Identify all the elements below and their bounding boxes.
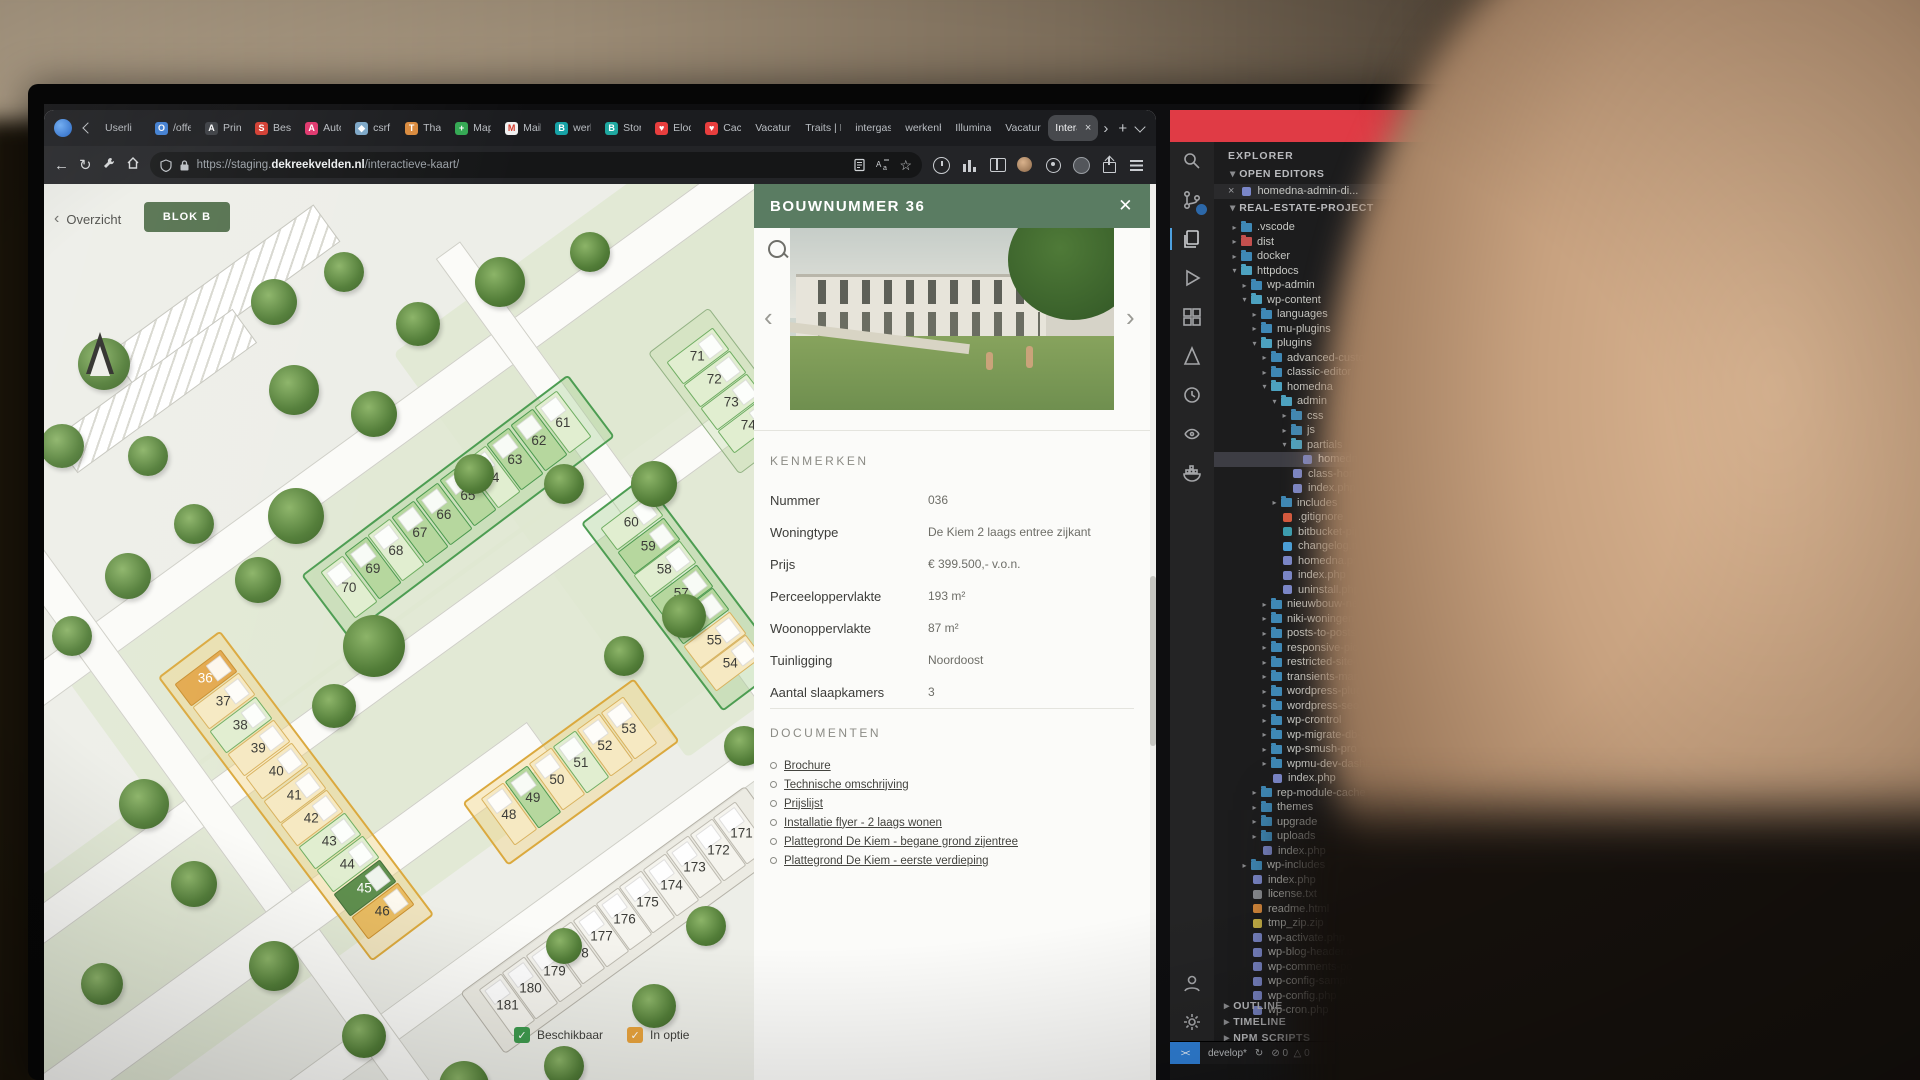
- chevron-right-icon: ▸: [1260, 716, 1269, 725]
- map-tree: [324, 252, 364, 292]
- plot-number: 52: [597, 737, 612, 752]
- tab-label: Userli: [105, 122, 132, 134]
- tree-item-label: languages: [1277, 308, 1328, 320]
- plot-number: 37: [216, 694, 231, 709]
- browser-tab[interactable]: Bwerke: [548, 115, 598, 141]
- plot-number: 44: [340, 857, 355, 872]
- plot-number: 68: [389, 543, 404, 558]
- photo-prev-icon[interactable]: ‹: [764, 302, 773, 333]
- plot-number: 36: [198, 671, 213, 686]
- plot-number: 176: [613, 912, 636, 927]
- browser-tab[interactable]: ♥Eloqu: [648, 115, 698, 141]
- chevron-down-icon: ▾: [1240, 295, 1249, 304]
- chevron-right-icon: ▸: [1260, 730, 1269, 739]
- accounts-icon[interactable]: [1181, 972, 1203, 994]
- chevron-right-icon: ▸: [1260, 745, 1269, 754]
- legend-checkbox: ✓: [627, 1027, 643, 1043]
- plot-number: 59: [641, 538, 656, 553]
- folder-icon: [1271, 730, 1282, 739]
- document-link[interactable]: Technische omschrijving: [784, 779, 909, 791]
- plot-number: 38: [234, 717, 249, 732]
- folder-icon: [1291, 426, 1302, 435]
- camera-extension-icon[interactable]: [1072, 156, 1090, 174]
- map-tree: [81, 963, 123, 1005]
- plot-number: 177: [589, 929, 612, 944]
- chevron-down-icon: ▾: [1280, 440, 1289, 449]
- chevron-right-icon: ▸: [1280, 411, 1289, 420]
- plot-number: 180: [519, 980, 542, 995]
- php-file-icon: [1283, 571, 1292, 580]
- plot-number: 39: [252, 740, 267, 755]
- map-tree: [546, 928, 582, 964]
- chevron-right-icon: ▸: [1260, 658, 1269, 667]
- folder-icon: [1251, 295, 1262, 304]
- search-icon[interactable]: [1181, 150, 1203, 172]
- document-link-row: Installatie flyer - 2 laags wonen: [770, 813, 1134, 832]
- kenmerk-label: Perceeloppervlakte: [770, 589, 928, 604]
- kenmerk-row: Nummer036: [770, 484, 1134, 516]
- folder-icon: [1271, 643, 1282, 652]
- browser-tab[interactable]: APrinci: [198, 115, 248, 141]
- map-tree: [269, 365, 319, 415]
- tab-favicon: +: [455, 122, 468, 135]
- document-link-row: Prijslijst: [770, 794, 1134, 813]
- sidebar-book-icon[interactable]: [988, 156, 1006, 174]
- tab-favicon: T: [405, 122, 418, 135]
- interactive-plot-map[interactable]: 7172737461626364656667686970545556575859…: [44, 184, 754, 1080]
- plot-number: 43: [322, 834, 337, 849]
- plot-number: 73: [724, 395, 739, 410]
- docker-icon[interactable]: [1181, 462, 1203, 484]
- panel-title: BOUWNUMMER 36: [770, 198, 925, 215]
- webpage-content: 7172737461626364656667686970545556575859…: [44, 184, 1156, 1080]
- map-tree: [105, 553, 151, 599]
- plot-number: 41: [287, 787, 302, 802]
- photo-windows-upper: [804, 280, 1040, 304]
- tab-label: Storyb: [623, 122, 641, 134]
- map-tree: [312, 684, 356, 728]
- bullet-icon: [770, 819, 777, 826]
- browser-tab[interactable]: intergas.n: [848, 115, 898, 141]
- url-bar[interactable]: https://staging.dekreekvelden.nl/interac…: [150, 152, 922, 178]
- legend-checkbox: ✓: [514, 1027, 530, 1043]
- folder-icon: [1271, 759, 1282, 768]
- remote-explorer-icon[interactable]: [1181, 423, 1203, 445]
- extensions-icon[interactable]: [1181, 306, 1203, 328]
- sidebar-section-timeline[interactable]: ▸ TIMELINE: [1224, 1016, 1286, 1028]
- bouwnummer-detail-panel: BOUWNUMMER 36 ✕: [754, 184, 1150, 1080]
- chevron-right-icon: ▸: [1230, 223, 1239, 232]
- home-icon[interactable]: [126, 156, 140, 174]
- chevron-right-icon: ▸: [1250, 324, 1259, 333]
- kenmerk-value: € 399.500,- v.o.n.: [928, 557, 1021, 571]
- bookmark-star-icon[interactable]: ☆: [899, 157, 912, 174]
- browser-tab[interactable]: Vacatures: [998, 115, 1048, 141]
- kenmerken-heading: KENMERKEN: [770, 454, 869, 468]
- browser-tab[interactable]: ◆csrf -: [348, 115, 398, 141]
- vscode-activity-bar: [1170, 142, 1214, 1047]
- browser-tab[interactable]: Userli: [98, 115, 148, 141]
- chevron-down-icon: ▾: [1230, 266, 1239, 275]
- php-file-icon: [1242, 187, 1251, 196]
- document-link-row: Brochure: [770, 756, 1134, 775]
- wrench-icon[interactable]: [102, 156, 116, 174]
- tab-favicon: B: [555, 122, 568, 135]
- tab-search-icon[interactable]: [1134, 121, 1145, 132]
- md-file-icon: [1283, 542, 1292, 551]
- folder-icon: [1271, 701, 1282, 710]
- plot-number: 46: [375, 904, 390, 919]
- browser-tab[interactable]: MMailtr: [498, 115, 548, 141]
- map-tree: [342, 1014, 386, 1058]
- browser-tab[interactable]: AAutom: [298, 115, 348, 141]
- folder-icon: [1251, 281, 1262, 290]
- svg-text:A: A: [876, 160, 882, 169]
- bullet-icon: [770, 857, 777, 864]
- kenmerk-value: Noordoost: [928, 653, 983, 667]
- map-tree: [544, 464, 584, 504]
- browser-tab[interactable]: +Mappi: [448, 115, 498, 141]
- tab-close-icon[interactable]: ×: [1085, 122, 1091, 134]
- plot-number: 40: [269, 764, 284, 779]
- tree-item-label: .vscode: [1257, 221, 1295, 233]
- tree-item-label: httpdocs: [1257, 265, 1299, 277]
- remote-indicator[interactable]: ><: [1170, 1042, 1200, 1064]
- map-tree: [128, 436, 168, 476]
- reader-mode-icon[interactable]: [853, 158, 866, 172]
- translate-icon[interactable]: Aa: [875, 158, 890, 172]
- chevron-right-icon: ▸: [1260, 353, 1269, 362]
- svg-text:a: a: [883, 165, 887, 172]
- yml-file-icon: [1283, 527, 1292, 536]
- azure-icon[interactable]: [1181, 345, 1203, 367]
- folder-icon: [1271, 353, 1282, 362]
- zoom-photo-icon[interactable]: [768, 240, 786, 258]
- plot-number: 179: [543, 963, 566, 978]
- bullet-icon: [770, 762, 777, 769]
- project-root-section[interactable]: ▾ REAL-ESTATE-PROJECT: [1230, 202, 1374, 214]
- chevron-right-icon: ▸: [1260, 629, 1269, 638]
- document-link[interactable]: Installatie flyer - 2 laags wonen: [784, 817, 942, 829]
- php-file-icon: [1253, 933, 1262, 942]
- chevron-right-icon: ▸: [1250, 788, 1259, 797]
- tab-scroll-left-icon[interactable]: [82, 122, 93, 133]
- tree-item-label: mu-plugins: [1277, 323, 1331, 335]
- map-tree: [662, 594, 706, 638]
- bullet-icon: [770, 838, 777, 845]
- plot-number: 173: [683, 860, 706, 875]
- tab-label: csrf -: [373, 122, 391, 134]
- tab-label: intergas.n: [855, 122, 891, 134]
- git-branch-label[interactable]: develop*: [1208, 1048, 1247, 1059]
- chevron-right-icon: ▸: [1260, 643, 1269, 652]
- tab-favicon: ◆: [355, 122, 368, 135]
- plot-number: 62: [532, 433, 547, 448]
- run-debug-icon[interactable]: [1181, 267, 1203, 289]
- tree-item-label: plugins: [1277, 337, 1312, 349]
- history-clock-icon[interactable]: [932, 156, 950, 174]
- php-file-icon: [1253, 977, 1262, 986]
- map-tree: [351, 391, 397, 437]
- open-editors-section[interactable]: ▾ OPEN EDITORS: [1230, 168, 1324, 180]
- chevron-right-icon: ▸: [1230, 252, 1239, 261]
- chevron-right-icon: ▸: [1260, 614, 1269, 623]
- photo-person: [1026, 346, 1033, 368]
- plot-number: 181: [496, 998, 519, 1013]
- php-file-icon: [1283, 556, 1292, 565]
- plot-number: 70: [341, 579, 356, 594]
- settings-gear-icon[interactable]: [1181, 1011, 1203, 1033]
- reload-button[interactable]: ↻: [79, 156, 92, 174]
- property-photo[interactable]: [790, 228, 1114, 410]
- plot-number: 63: [508, 451, 523, 466]
- folder-icon: [1271, 629, 1282, 638]
- explorer-heading: EXPLORER: [1228, 150, 1294, 162]
- tab-label: Vacatures: [1005, 122, 1041, 134]
- browser-tab[interactable]: SBest P: [248, 115, 298, 141]
- kenmerk-row: Perceeloppervlakte193 m²: [770, 580, 1134, 612]
- kenmerk-row: TuinliggingNoordoost: [770, 644, 1134, 676]
- plot-number: 42: [305, 810, 320, 825]
- legend-item: ✓In optie: [627, 1027, 689, 1043]
- legend-label: Beschikbaar: [537, 1028, 603, 1042]
- folder-icon: [1291, 440, 1302, 449]
- txt-file-icon: [1253, 890, 1262, 899]
- tab-label: Interact: [1055, 122, 1077, 134]
- map-tree: [343, 615, 405, 677]
- plot-number: 174: [660, 877, 683, 892]
- document-link[interactable]: Plattegrond De Kiem - begane grond zijen…: [784, 836, 1018, 848]
- kenmerk-value: 036: [928, 493, 948, 507]
- timeline-clock-icon[interactable]: [1181, 384, 1203, 406]
- chevron-right-icon: ▸: [1240, 281, 1249, 290]
- plot-number: 66: [436, 506, 451, 521]
- folder-icon: [1271, 658, 1282, 667]
- map-tree: [632, 984, 676, 1028]
- kenmerken-table: Nummer036WoningtypeDe Kiem 2 laags entre…: [770, 484, 1134, 708]
- chevron-right-icon: ▸: [1250, 310, 1259, 319]
- map-tree: [570, 232, 610, 272]
- explorer-files-icon[interactable]: [1181, 228, 1203, 250]
- close-icon[interactable]: ✕: [1118, 196, 1134, 216]
- sync-icon[interactable]: ↻: [1255, 1048, 1263, 1059]
- menu-icon[interactable]: [1128, 156, 1146, 174]
- tab-label: Eloqu: [673, 122, 691, 134]
- document-link[interactable]: Plattegrond De Kiem - eerste verdieping: [784, 855, 989, 867]
- kenmerk-value: 3: [928, 685, 935, 699]
- folder-icon: [1261, 339, 1272, 348]
- folder-icon: [1241, 252, 1252, 261]
- plot-number: 72: [707, 372, 722, 387]
- folder-icon: [1261, 832, 1272, 841]
- bullet-icon: [770, 781, 777, 788]
- browser-tab[interactable]: ♥Cache: [698, 115, 748, 141]
- gear-extension-icon[interactable]: [1044, 156, 1062, 174]
- zip-file-icon: [1253, 919, 1262, 928]
- tree-item-label: wp-admin: [1267, 279, 1315, 291]
- folder-icon: [1281, 498, 1292, 507]
- kenmerk-value: De Kiem 2 laags entree zijkant: [928, 525, 1091, 539]
- chevron-right-icon: ▸: [1260, 600, 1269, 609]
- folder-icon: [1261, 788, 1272, 797]
- share-icon[interactable]: [1100, 156, 1118, 174]
- kenmerk-row: WoningtypeDe Kiem 2 laags entree zijkant: [770, 516, 1134, 548]
- tree-item-label: js: [1307, 424, 1315, 436]
- photo-of-workstation: UserliO/offertAPrinciSBest PAAutom◆csrf …: [0, 0, 1920, 1080]
- browser-tab[interactable]: Illuminate: [948, 115, 998, 141]
- chevron-down-icon: ▾: [1270, 397, 1279, 406]
- bullet-icon: [770, 800, 777, 807]
- browser-tab[interactable]: werkenbij: [898, 115, 948, 141]
- panel-header: BOUWNUMMER 36 ✕: [754, 184, 1150, 228]
- chevron-right-icon: ▸: [1260, 759, 1269, 768]
- chevron-right-icon: ▸: [1270, 498, 1279, 507]
- kenmerk-label: Woningtype: [770, 525, 928, 540]
- lock-icon: [179, 159, 190, 172]
- chevron-down-icon: ▾: [1260, 382, 1269, 391]
- plot-number: 175: [636, 894, 659, 909]
- tab-favicon: O: [155, 122, 168, 135]
- folder-icon: [1261, 817, 1272, 826]
- tab-label: Cache: [723, 122, 741, 134]
- chevron-right-icon: ▸: [1260, 687, 1269, 696]
- folder-icon: [1271, 716, 1282, 725]
- chevron-right-icon: ▸: [1250, 817, 1259, 826]
- source-control-icon[interactable]: [1181, 189, 1203, 211]
- chevron-right-icon: ▸: [1240, 861, 1249, 870]
- plot-number: 54: [723, 656, 738, 671]
- tab-favicon: ♥: [705, 122, 718, 135]
- browser-toolbar: ← ↻ https://staging.dekreekvelden.nl/int…: [44, 146, 1156, 184]
- map-tree: [686, 906, 726, 946]
- new-tab-button[interactable]: +: [1118, 120, 1127, 137]
- chevron-left-icon: ‹: [54, 210, 59, 228]
- photo-next-icon[interactable]: ›: [1126, 302, 1135, 333]
- folder-icon: [1271, 600, 1282, 609]
- panel-scrollbar-thumb[interactable]: [1150, 576, 1156, 746]
- browser-tab[interactable]: Interact×: [1048, 115, 1098, 141]
- folder-icon: [1271, 687, 1282, 696]
- block-selector-button[interactable]: BLOK B: [144, 202, 230, 232]
- tab-label: Mailtr: [523, 122, 541, 134]
- plot-number: 69: [365, 561, 380, 576]
- chevron-right-icon: ▸: [1260, 672, 1269, 681]
- plot-number: 71: [690, 349, 705, 364]
- kenmerk-value: 87 m²: [928, 621, 959, 635]
- tab-label: werkenbij: [905, 122, 941, 134]
- plot-number: 172: [706, 843, 729, 858]
- document-link[interactable]: Prijslijst: [784, 798, 823, 810]
- legend-label: In optie: [650, 1028, 689, 1042]
- legend-item: ✓Beschikbaar: [514, 1027, 603, 1043]
- tree-item-label: dist: [1257, 236, 1274, 248]
- php-file-icon: [1293, 469, 1302, 478]
- tab-overflow-icon[interactable]: ›: [1103, 120, 1108, 137]
- map-tree: [604, 636, 644, 676]
- folder-icon: [1261, 803, 1272, 812]
- tab-label: Traits | La: [805, 122, 841, 134]
- chevron-right-icon: ▸: [1230, 237, 1239, 246]
- tab-label: Princi: [223, 122, 241, 134]
- folder-icon: [1271, 382, 1282, 391]
- tree-item-label: index.php: [1288, 772, 1336, 784]
- browser-tab[interactable]: Traits | La: [798, 115, 848, 141]
- tab-favicon: S: [255, 122, 268, 135]
- chevron-down-icon: ▾: [1250, 339, 1259, 348]
- avatar-extension-icon[interactable]: [1016, 156, 1034, 174]
- map-tree: [174, 504, 214, 544]
- tab-label: Mappi: [473, 122, 491, 134]
- browser-tab[interactable]: TThat s: [398, 115, 448, 141]
- back-button[interactable]: ←: [54, 157, 69, 174]
- browser-tab[interactable]: O/offert: [148, 115, 198, 141]
- browser-tab[interactable]: BStoryb: [598, 115, 648, 141]
- map-tree: [268, 488, 324, 544]
- php-file-icon: [1253, 875, 1262, 884]
- tab-favicon: ♥: [655, 122, 668, 135]
- sidebar-section-outline[interactable]: ▸ OUTLINE: [1224, 1000, 1283, 1012]
- tab-label: Autom: [323, 122, 341, 134]
- stats-bars-icon[interactable]: [960, 156, 978, 174]
- folder-icon: [1261, 324, 1272, 333]
- php-file-icon: [1263, 846, 1272, 855]
- plot-number: 51: [573, 755, 588, 770]
- php-file-icon: [1253, 948, 1262, 957]
- kenmerk-value: 193 m²: [928, 589, 965, 603]
- kenmerk-row: Prijs€ 399.500,- v.o.n.: [770, 548, 1134, 580]
- browser-tab[interactable]: Vacatures: [748, 115, 798, 141]
- php-file-icon: [1253, 962, 1262, 971]
- tab-label: Illuminate: [955, 122, 991, 134]
- browser-profile-icon[interactable]: [54, 119, 72, 137]
- plot-number: 48: [501, 807, 516, 822]
- plot-number: 45: [358, 880, 373, 895]
- plot-number: 53: [621, 720, 636, 735]
- folder-icon: [1271, 614, 1282, 623]
- map-tree: [475, 257, 525, 307]
- document-link-row: Plattegrond De Kiem - begane grond zijen…: [770, 832, 1134, 851]
- php-file-icon: [1303, 455, 1312, 464]
- map-tree: [454, 454, 494, 494]
- map-tree: [251, 279, 297, 325]
- plot-number: 171: [730, 826, 753, 841]
- folder-icon: [1271, 745, 1282, 754]
- map-tree: [439, 1061, 489, 1080]
- chevron-right-icon: ▸: [1260, 701, 1269, 710]
- folder-icon: [1291, 411, 1302, 420]
- plot-number: 60: [624, 515, 639, 530]
- map-tree: [544, 1046, 584, 1080]
- browser-window: UserliO/offertAPrinciSBest PAAutom◆csrf …: [44, 110, 1156, 1080]
- plot-number: 49: [525, 789, 540, 804]
- documenten-heading: DOCUMENTEN: [770, 726, 881, 740]
- tab-favicon: B: [605, 122, 618, 135]
- folder-icon: [1241, 223, 1252, 232]
- document-link[interactable]: Brochure: [784, 760, 831, 772]
- overview-label: Overzicht: [66, 212, 121, 227]
- map-legend: ✓Beschikbaar✓In optie: [514, 1027, 689, 1043]
- shield-icon: [160, 159, 172, 172]
- tab-label: That s: [423, 122, 441, 134]
- person-shoulder: [1290, 810, 1920, 1080]
- folder-icon: [1251, 861, 1262, 870]
- back-to-overview-link[interactable]: ‹ Overzicht: [54, 210, 121, 228]
- folder-icon: [1241, 266, 1252, 275]
- map-tree: [631, 461, 677, 507]
- php-file-icon: [1293, 484, 1302, 493]
- tab-label: Best P: [273, 122, 291, 134]
- chevron-right-icon: ▸: [1250, 803, 1259, 812]
